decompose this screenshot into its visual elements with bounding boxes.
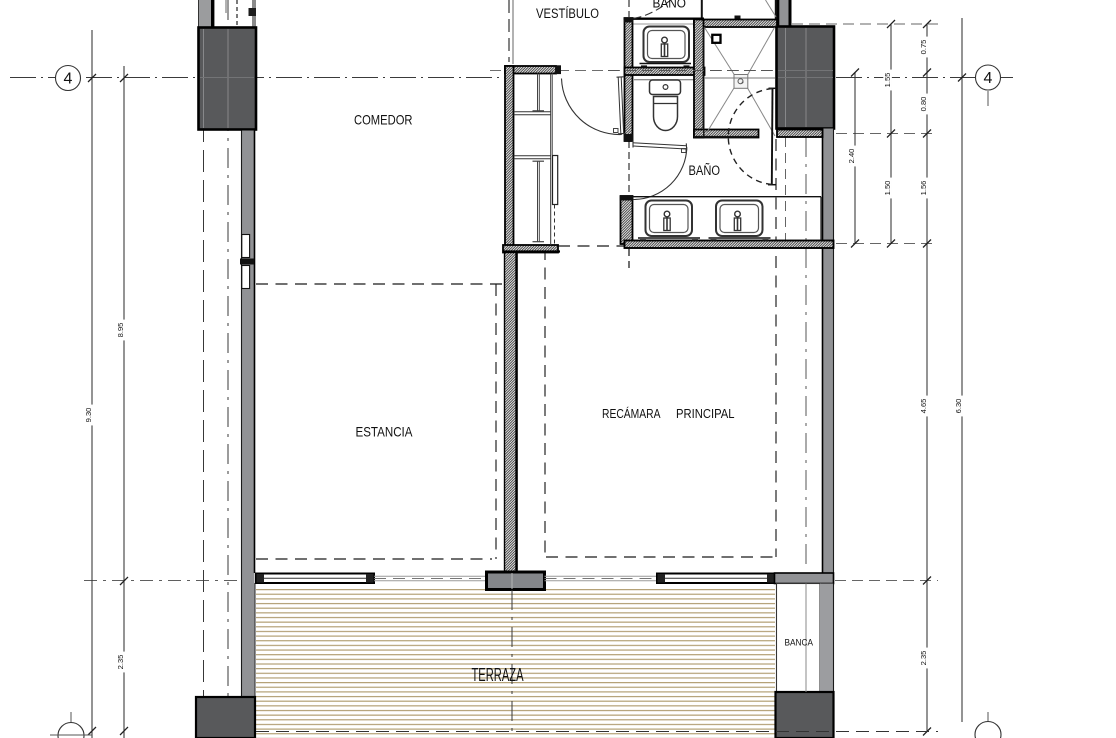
- svg-text:TERRAZA: TERRAZA: [472, 665, 524, 685]
- svg-text:1.56: 1.56: [919, 181, 928, 196]
- svg-text:BAÑO: BAÑO: [689, 163, 721, 178]
- svg-text:0.75: 0.75: [919, 40, 928, 55]
- svg-text:4: 4: [984, 70, 993, 87]
- svg-text:4: 4: [64, 71, 73, 88]
- svg-text:2.35: 2.35: [116, 655, 125, 670]
- svg-text:2.40: 2.40: [847, 149, 856, 164]
- svg-text:BANCA: BANCA: [785, 638, 814, 649]
- svg-text:PRINCIPAL: PRINCIPAL: [676, 406, 735, 421]
- svg-text:2.35: 2.35: [919, 651, 928, 666]
- svg-text:BAÑO: BAÑO: [653, 0, 687, 11]
- svg-text:VESTÍBULO: VESTÍBULO: [536, 6, 599, 21]
- svg-text:RECÁMARA: RECÁMARA: [602, 406, 661, 421]
- svg-text:4.65: 4.65: [919, 399, 928, 414]
- svg-text:8.95: 8.95: [116, 323, 125, 338]
- svg-text:COMEDOR: COMEDOR: [354, 112, 413, 128]
- svg-text:0.80: 0.80: [919, 97, 928, 112]
- svg-text:1.55: 1.55: [883, 73, 892, 88]
- svg-text:ESTANCIA: ESTANCIA: [356, 424, 414, 440]
- svg-text:9.30: 9.30: [84, 408, 93, 423]
- svg-text:6.30: 6.30: [954, 399, 963, 414]
- svg-text:1.50: 1.50: [883, 181, 892, 196]
